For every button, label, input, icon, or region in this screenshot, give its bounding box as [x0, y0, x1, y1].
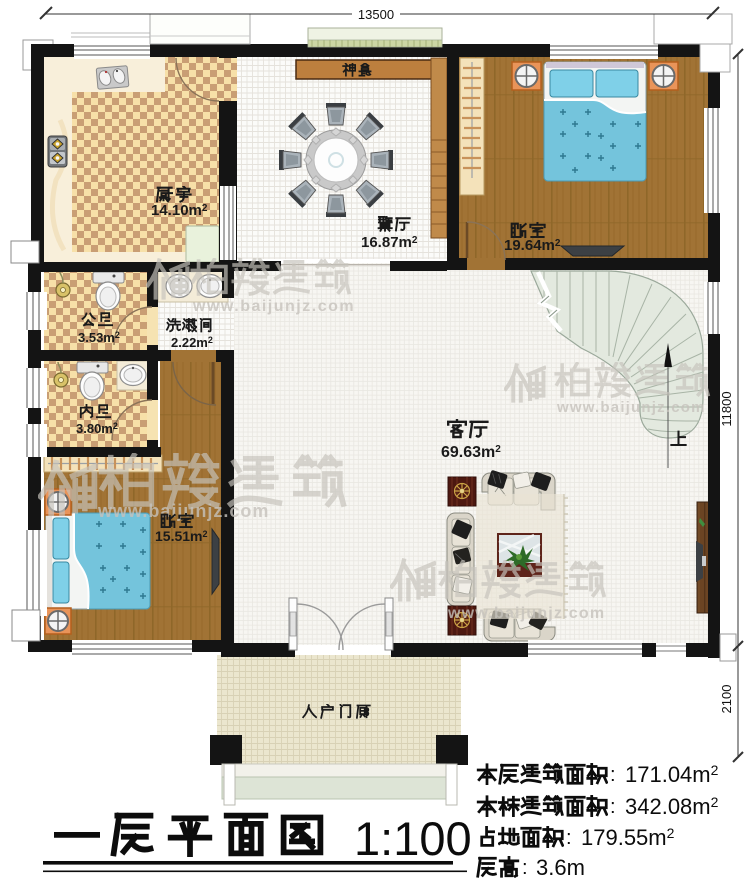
- svg-text:www.baijunjz.com: www.baijunjz.com: [192, 298, 355, 315]
- svg-text:14.10m2: 14.10m2: [151, 202, 208, 219]
- svg-text::: :: [610, 764, 616, 786]
- svg-text:1:100: 1:100: [354, 812, 472, 865]
- svg-text:3.80m2: 3.80m2: [76, 421, 118, 436]
- svg-text:15.51m2: 15.51m2: [155, 528, 208, 544]
- svg-text:11800: 11800: [719, 391, 734, 426]
- svg-text::: :: [610, 796, 616, 818]
- svg-text:3.6m: 3.6m: [536, 855, 585, 880]
- svg-text:3.53m2: 3.53m2: [78, 330, 120, 345]
- svg-text:2.22m2: 2.22m2: [171, 335, 213, 350]
- svg-text:www.baijunjz.com: www.baijunjz.com: [556, 399, 706, 416]
- svg-text::: :: [522, 857, 528, 879]
- svg-text:19.64m2: 19.64m2: [504, 237, 561, 254]
- svg-text:69.63m2: 69.63m2: [441, 444, 501, 461]
- svg-text:www.baijunjz.com: www.baijunjz.com: [447, 605, 605, 622]
- svg-text:342.08m2: 342.08m2: [625, 794, 719, 819]
- svg-text:2100: 2100: [719, 685, 734, 714]
- svg-text:179.55m2: 179.55m2: [581, 825, 675, 850]
- svg-text:171.04m2: 171.04m2: [625, 762, 719, 787]
- svg-text:13500: 13500: [358, 7, 394, 22]
- svg-text::: :: [566, 827, 572, 849]
- svg-text:16.87m2: 16.87m2: [361, 234, 418, 251]
